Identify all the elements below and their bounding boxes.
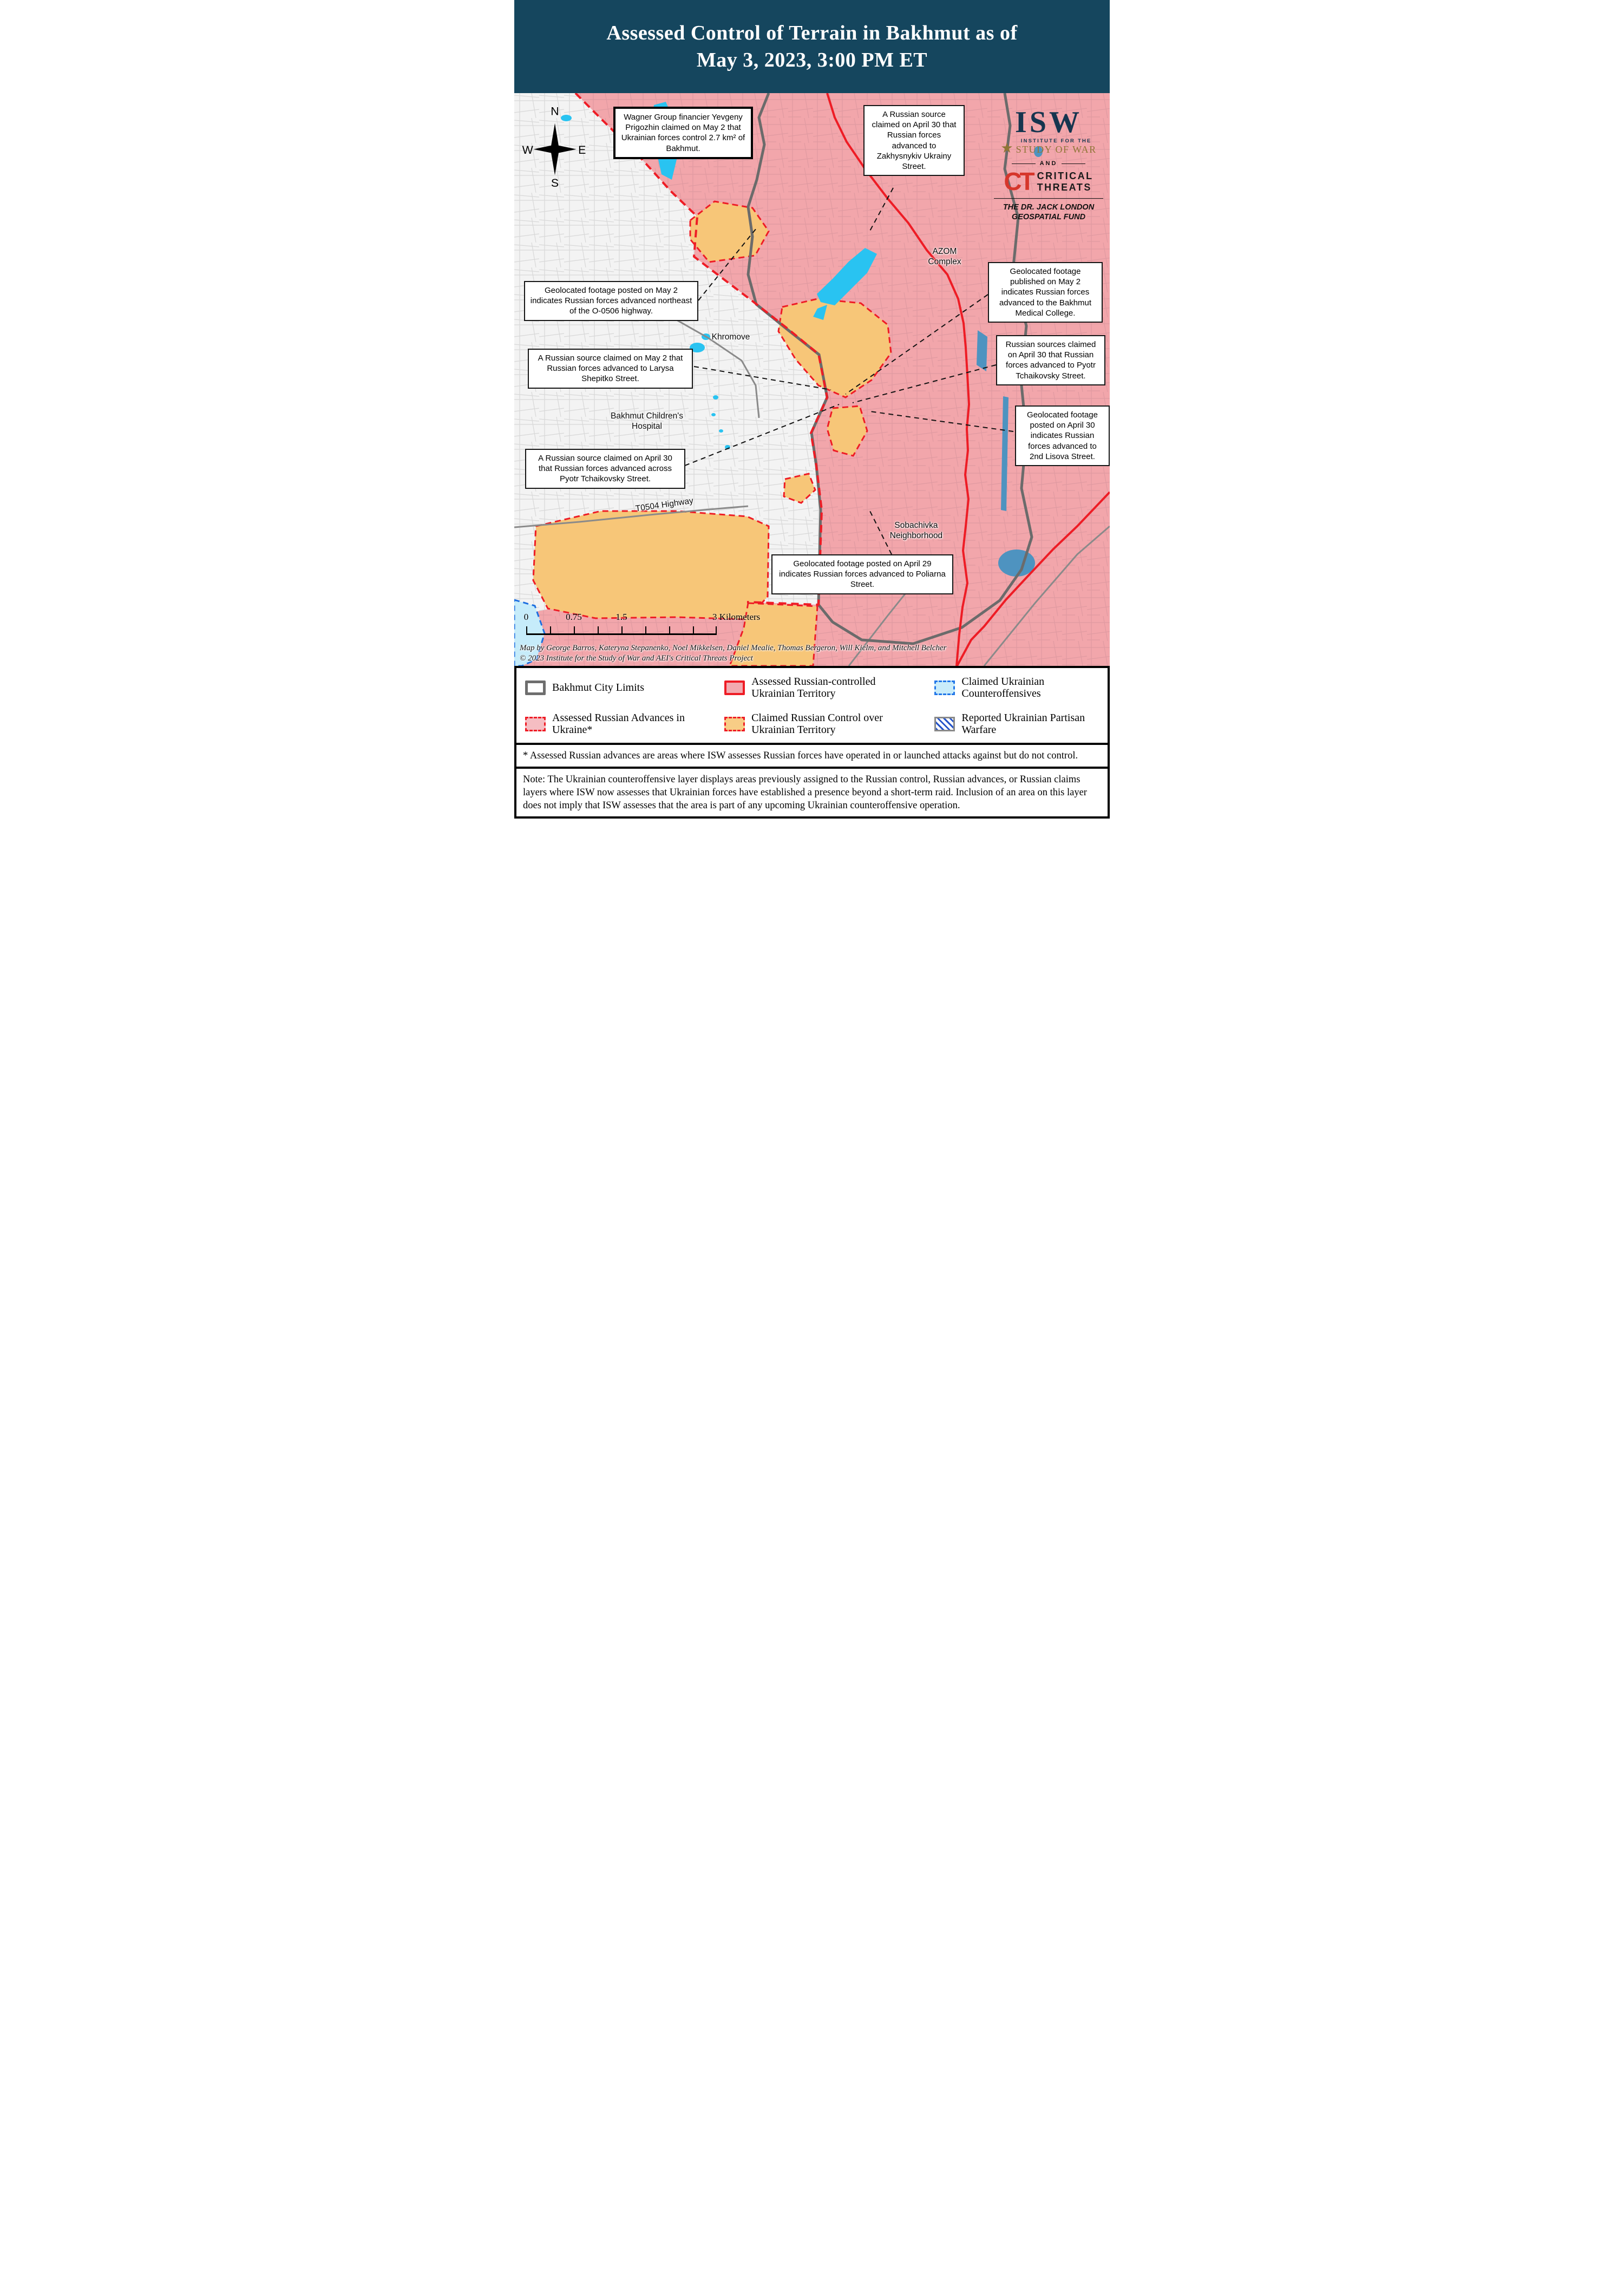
scale-tick-3km: 3 Kilometers	[712, 612, 760, 623]
legend: Bakhmut City Limits Assessed Russian Adv…	[514, 666, 1110, 745]
isw-institute-label: INSTITUTE FOR THE	[1021, 138, 1092, 144]
label-bakhmut-childrens-hospital: Bakhmut Children's Hospital	[595, 411, 698, 431]
compass-east-label: E	[578, 143, 586, 156]
page-title-line2: May 3, 2023, 3:00 PM ET	[697, 47, 927, 74]
callout-2nd-lisova-street: Geolocated footage posted on April 30 in…	[1015, 405, 1110, 466]
legend-item-claimed-russian-control: Claimed Russian Control over Ukrainian T…	[724, 712, 921, 736]
credits-copyright: © 2023 Institute for the Study of War an…	[520, 653, 1107, 664]
callout-zakhysnykiv-street: A Russian source claimed on April 30 tha…	[863, 105, 965, 176]
callout-bakhmut-medical-college: Geolocated footage published on May 2 in…	[988, 262, 1103, 323]
scale-bar: 0 0.75 1.5 3 Kilometers	[520, 612, 812, 640]
callout-larysa-shepitko-street: A Russian source claimed on May 2 that R…	[528, 349, 693, 389]
map-credits: Map by George Barros, Kateryna Stepanenk…	[520, 643, 1107, 664]
divider-line	[994, 198, 1103, 199]
geospatial-fund-line2: GEOSPATIAL FUND	[1012, 213, 1085, 221]
scale-tick-15: 1.5	[615, 612, 627, 623]
threats-label: THREATS	[1037, 182, 1092, 193]
compass-south-label: S	[551, 176, 559, 188]
note-text: Note: The Ukrainian counteroffensive lay…	[523, 774, 1087, 811]
legend-item-ukrainian-counteroffensives: Claimed Ukrainian Counteroffensives	[934, 676, 1099, 700]
critical-threats-logo: CT	[1004, 171, 1032, 193]
critical-label: CRITICAL	[1037, 171, 1093, 182]
legend-item-russian-advances: Assessed Russian Advances in Ukraine*	[525, 712, 711, 736]
scale-tick-075: 0.75	[566, 612, 582, 623]
and-label: AND	[1040, 160, 1058, 167]
scale-bar-line	[526, 625, 717, 635]
label-azom-complex: AZOM Complex	[918, 247, 972, 267]
label-khromove: Khromove	[704, 332, 758, 343]
divider-line	[1012, 163, 1036, 164]
legend-item-city-limits: Bakhmut City Limits	[525, 676, 711, 700]
isw-bakhmut-map-page: Assessed Control of Terrain in Bakhmut a…	[514, 0, 1110, 819]
ukrainian-counteroffensives-swatch-icon	[934, 681, 955, 695]
credits-authors: Map by George Barros, Kateryna Stepanenk…	[520, 643, 1107, 653]
legend-item-russian-controlled: Assessed Russian-controlled Ukrainian Te…	[724, 676, 921, 700]
bakhmut-control-map: N W E S ISW ★ INSTITUTE FOR THE STUDY OF…	[514, 93, 1110, 666]
compass-star-icon	[533, 123, 576, 175]
label-sobachivka-neighborhood: Sobachivka Neighborhood	[866, 521, 966, 541]
compass-west-label: W	[522, 143, 534, 156]
page-title-line1: Assessed Control of Terrain in Bakhmut a…	[606, 19, 1017, 47]
title-banner: Assessed Control of Terrain in Bakhmut a…	[514, 0, 1110, 93]
compass-rose: N W E S	[522, 102, 588, 188]
callout-o0506-highway: Geolocated footage posted on May 2 indic…	[524, 281, 698, 321]
isw-study-of-war-label: STUDY OF WAR	[1016, 144, 1097, 155]
callout-pyotr-tchaikovsky-street: Russian sources claimed on April 30 that…	[996, 335, 1105, 385]
isw-logo: ISW	[992, 108, 1105, 137]
partisan-warfare-swatch-icon	[934, 717, 955, 731]
isw-star-icon: ★	[1000, 141, 1013, 155]
russian-controlled-swatch-icon	[724, 681, 745, 695]
compass-north-label: N	[551, 104, 559, 117]
geospatial-fund-line1: THE DR. JACK LONDON	[1003, 203, 1094, 212]
scale-tick-0: 0	[524, 612, 529, 623]
note-panel: Note: The Ukrainian counteroffensive lay…	[514, 767, 1110, 819]
footnote-panel: * Assessed Russian advances are areas wh…	[514, 743, 1110, 769]
divider-line	[1062, 163, 1085, 164]
legend-item-partisan-warfare: Reported Ukrainian Partisan Warfare	[934, 712, 1099, 736]
branding-block: ISW ★ INSTITUTE FOR THE STUDY OF WAR AND…	[992, 108, 1105, 222]
footnote-text: * Assessed Russian advances are areas wh…	[523, 750, 1078, 761]
city-limits-swatch-icon	[525, 681, 546, 695]
claimed-russian-control-swatch-icon	[724, 717, 745, 731]
callout-across-pyotr-tchaikovsky: A Russian source claimed on April 30 tha…	[525, 449, 685, 489]
callout-poliarna-street: Geolocated footage posted on April 29 in…	[771, 554, 953, 594]
russian-advances-swatch-icon	[525, 717, 546, 731]
callout-wagner-claim: Wagner Group financier Yevgeny Prigozhin…	[613, 107, 753, 159]
